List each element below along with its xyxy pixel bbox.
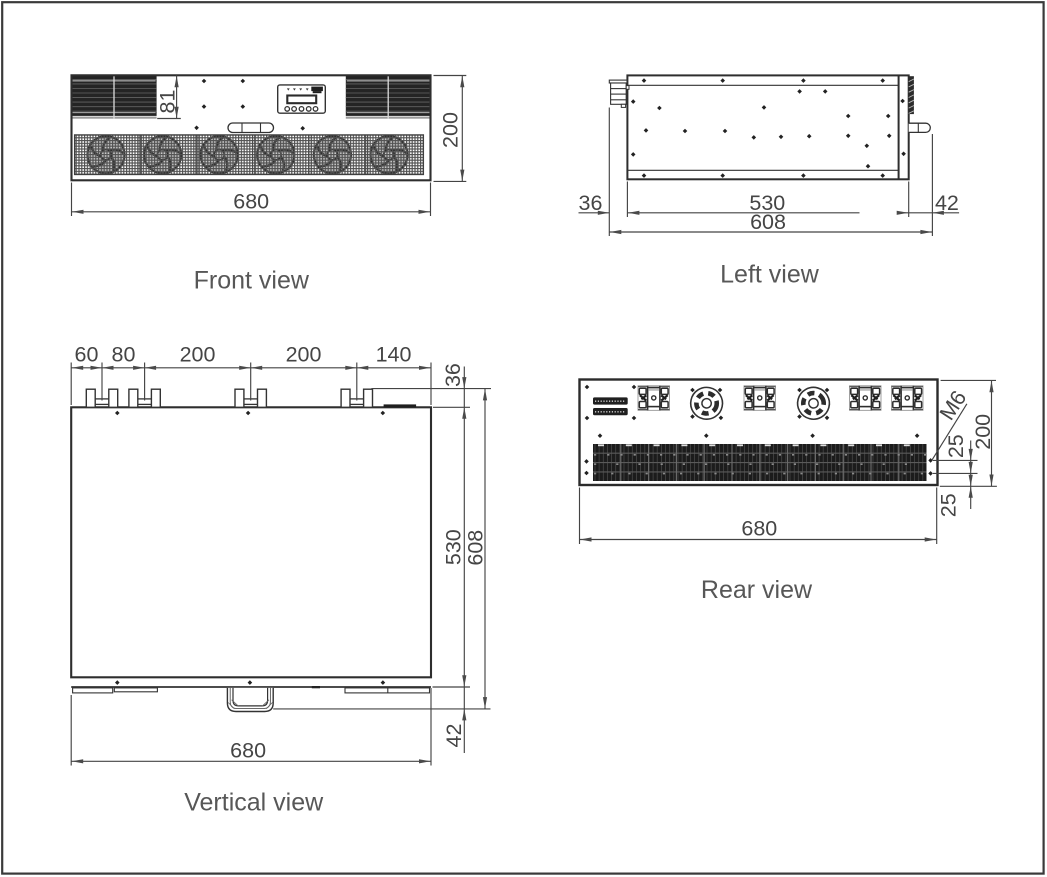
svg-text:680: 680 <box>741 517 777 541</box>
svg-text:Rear view: Rear view <box>701 576 813 604</box>
svg-text:140: 140 <box>376 342 412 366</box>
svg-text:42: 42 <box>935 191 959 215</box>
svg-text:25: 25 <box>944 434 968 458</box>
svg-text:530: 530 <box>441 529 465 565</box>
svg-text:200: 200 <box>286 342 322 366</box>
svg-text:42: 42 <box>442 724 466 748</box>
svg-text:25: 25 <box>937 493 961 517</box>
svg-text:200: 200 <box>439 112 463 148</box>
svg-text:Vertical view: Vertical view <box>184 789 324 817</box>
svg-text:608: 608 <box>750 210 786 234</box>
svg-text:Left view: Left view <box>720 261 820 289</box>
svg-text:608: 608 <box>464 530 488 566</box>
svg-text:60: 60 <box>75 342 99 366</box>
svg-text:36: 36 <box>441 363 465 387</box>
svg-text:680: 680 <box>230 739 266 763</box>
svg-text:Front view: Front view <box>194 267 310 295</box>
svg-text:200: 200 <box>971 414 995 450</box>
svg-text:81: 81 <box>155 90 179 114</box>
svg-text:80: 80 <box>112 342 136 366</box>
svg-text:200: 200 <box>180 342 216 366</box>
svg-text:36: 36 <box>579 191 603 215</box>
svg-text:680: 680 <box>233 189 269 213</box>
